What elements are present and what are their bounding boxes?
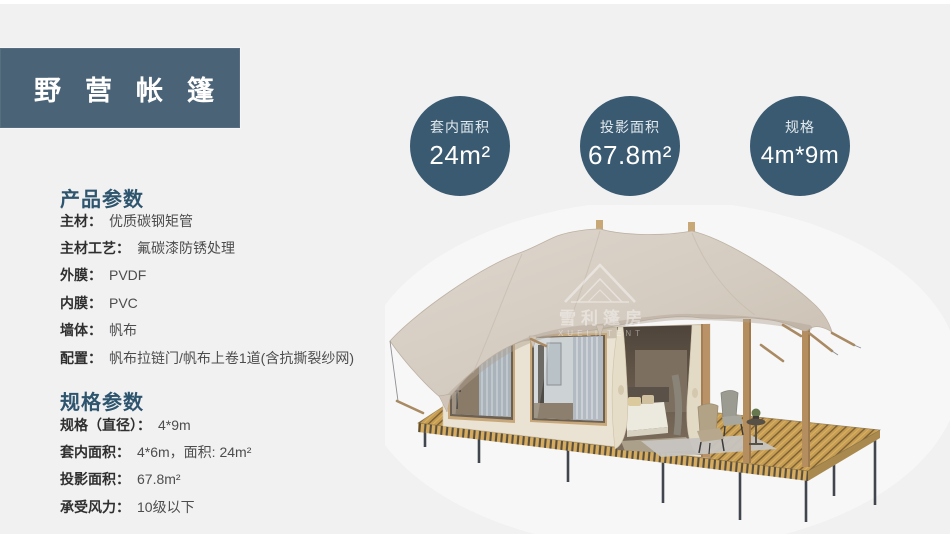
param-row: 配置：帆布拉链门/帆布上卷1道(含抗撕裂纱网): [60, 344, 354, 371]
param-row: 主材工艺：氟碳漆防锈处理: [60, 234, 354, 261]
badge-value: 67.8m²: [580, 140, 680, 171]
badge-label: 套内面积: [410, 117, 510, 137]
param-row: 投影面积：67.8m²: [60, 466, 251, 493]
badge-value: 4m*9m: [750, 142, 850, 170]
param-row: 外膜：PVDF: [60, 262, 354, 289]
badge-inner-area: 套内面积 24m²: [410, 96, 510, 196]
badge-size: 规格 4m*9m: [750, 96, 850, 196]
badge-label: 规格: [750, 117, 850, 137]
badge-value: 24m²: [410, 140, 510, 171]
tent-render: 雪利篷房 XUELI TENT: [385, 205, 950, 534]
watermark-en: XUELI TENT: [558, 329, 644, 338]
param-row: 内膜：PVC: [60, 289, 354, 316]
param-row: 承受风力：10级以下: [60, 493, 251, 520]
page-title-block: 野营帐篷: [0, 48, 240, 128]
param-row: 主材：优质碳钢矩管: [60, 207, 354, 234]
param-row: 套内面积：4*6m，面积: 24m²: [60, 438, 251, 465]
top-border: [0, 0, 950, 4]
page-title: 野营帐篷: [34, 69, 238, 108]
watermark-cjk: 雪利篷房: [559, 308, 647, 328]
param-row: 规格（直径）：4*9m: [60, 411, 251, 438]
badge-label: 投影面积: [580, 117, 680, 137]
param-row: 墙体：帆布: [60, 317, 354, 344]
product-params-list: 主材：优质碳钢矩管 主材工艺：氟碳漆防锈处理 外膜：PVDF 内膜：PVC 墙体…: [60, 207, 354, 371]
page: 野营帐篷 套内面积 24m² 投影面积 67.8m² 规格 4m*9m 产品参数…: [0, 0, 950, 534]
spec-params-list: 规格（直径）：4*9m 套内面积：4*6m，面积: 24m² 投影面积：67.8…: [60, 411, 251, 521]
badge-projection-area: 投影面积 67.8m²: [580, 96, 680, 196]
